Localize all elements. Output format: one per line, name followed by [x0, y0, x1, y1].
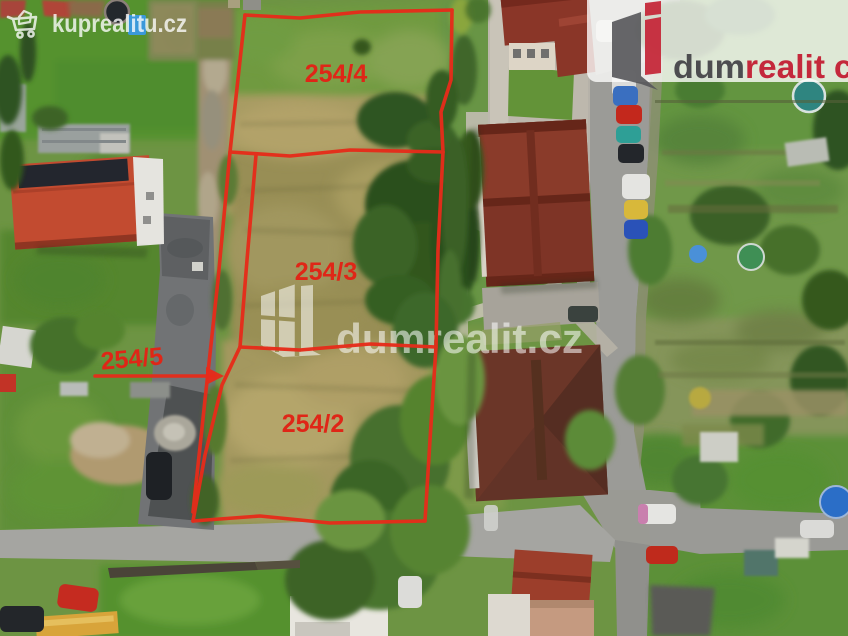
svg-text:254/4: 254/4 — [305, 60, 368, 88]
svg-text:kuprealitu.cz: kuprealitu.cz — [52, 10, 187, 38]
svg-text:realit: realit — [745, 48, 825, 85]
svg-text:dumrealit.cz: dumrealit.cz — [336, 315, 583, 362]
svg-text:254/5: 254/5 — [100, 342, 165, 375]
svg-text:254/2: 254/2 — [282, 410, 345, 438]
svg-text:cz: cz — [834, 48, 848, 85]
svg-text:254/3: 254/3 — [295, 258, 358, 286]
svg-text:dum: dum — [673, 48, 745, 85]
